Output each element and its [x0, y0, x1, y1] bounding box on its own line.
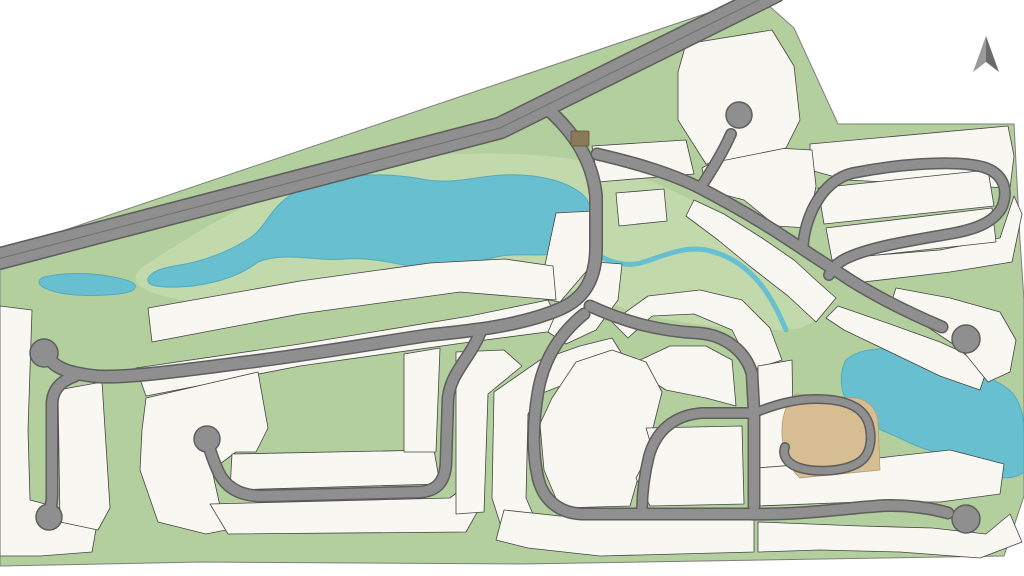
mailbox-box — [571, 131, 589, 146]
parcel-block — [616, 189, 667, 226]
parcel-block — [404, 348, 440, 452]
mailbox-marker — [571, 131, 589, 146]
site-plan-canvas — [0, 0, 1024, 576]
parcel-block — [58, 382, 110, 530]
north-arrow-light-half — [973, 36, 986, 72]
north-arrow — [973, 36, 999, 72]
parcel-block — [230, 450, 440, 490]
site-plan — [0, 0, 1024, 576]
cul-de-sac — [726, 102, 752, 128]
map-layers — [0, 0, 1024, 566]
cul-de-sac — [952, 325, 980, 353]
north-arrow-dark-half — [986, 36, 999, 72]
parcel-block — [678, 30, 800, 164]
cul-de-sac — [952, 505, 980, 533]
